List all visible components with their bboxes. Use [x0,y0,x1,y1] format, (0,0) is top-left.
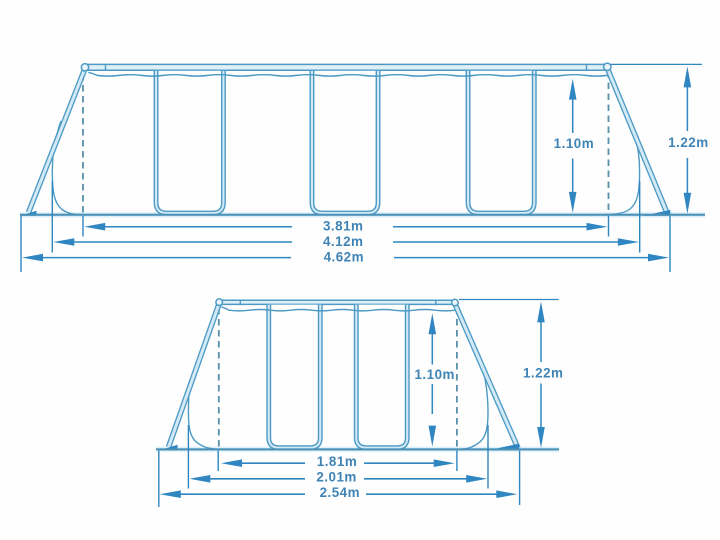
svg-text:4.62m: 4.62m [324,250,364,265]
svg-text:2.54m: 2.54m [320,485,360,500]
svg-text:4.12m: 4.12m [323,234,363,249]
svg-text:1.22m: 1.22m [523,365,563,380]
svg-text:1.22m: 1.22m [668,135,708,150]
svg-text:1.81m: 1.81m [317,454,357,469]
svg-text:3.81m: 3.81m [323,219,363,234]
svg-text:1.10m: 1.10m [554,136,594,151]
svg-text:1.10m: 1.10m [414,367,454,382]
svg-text:2.01m: 2.01m [316,470,356,485]
